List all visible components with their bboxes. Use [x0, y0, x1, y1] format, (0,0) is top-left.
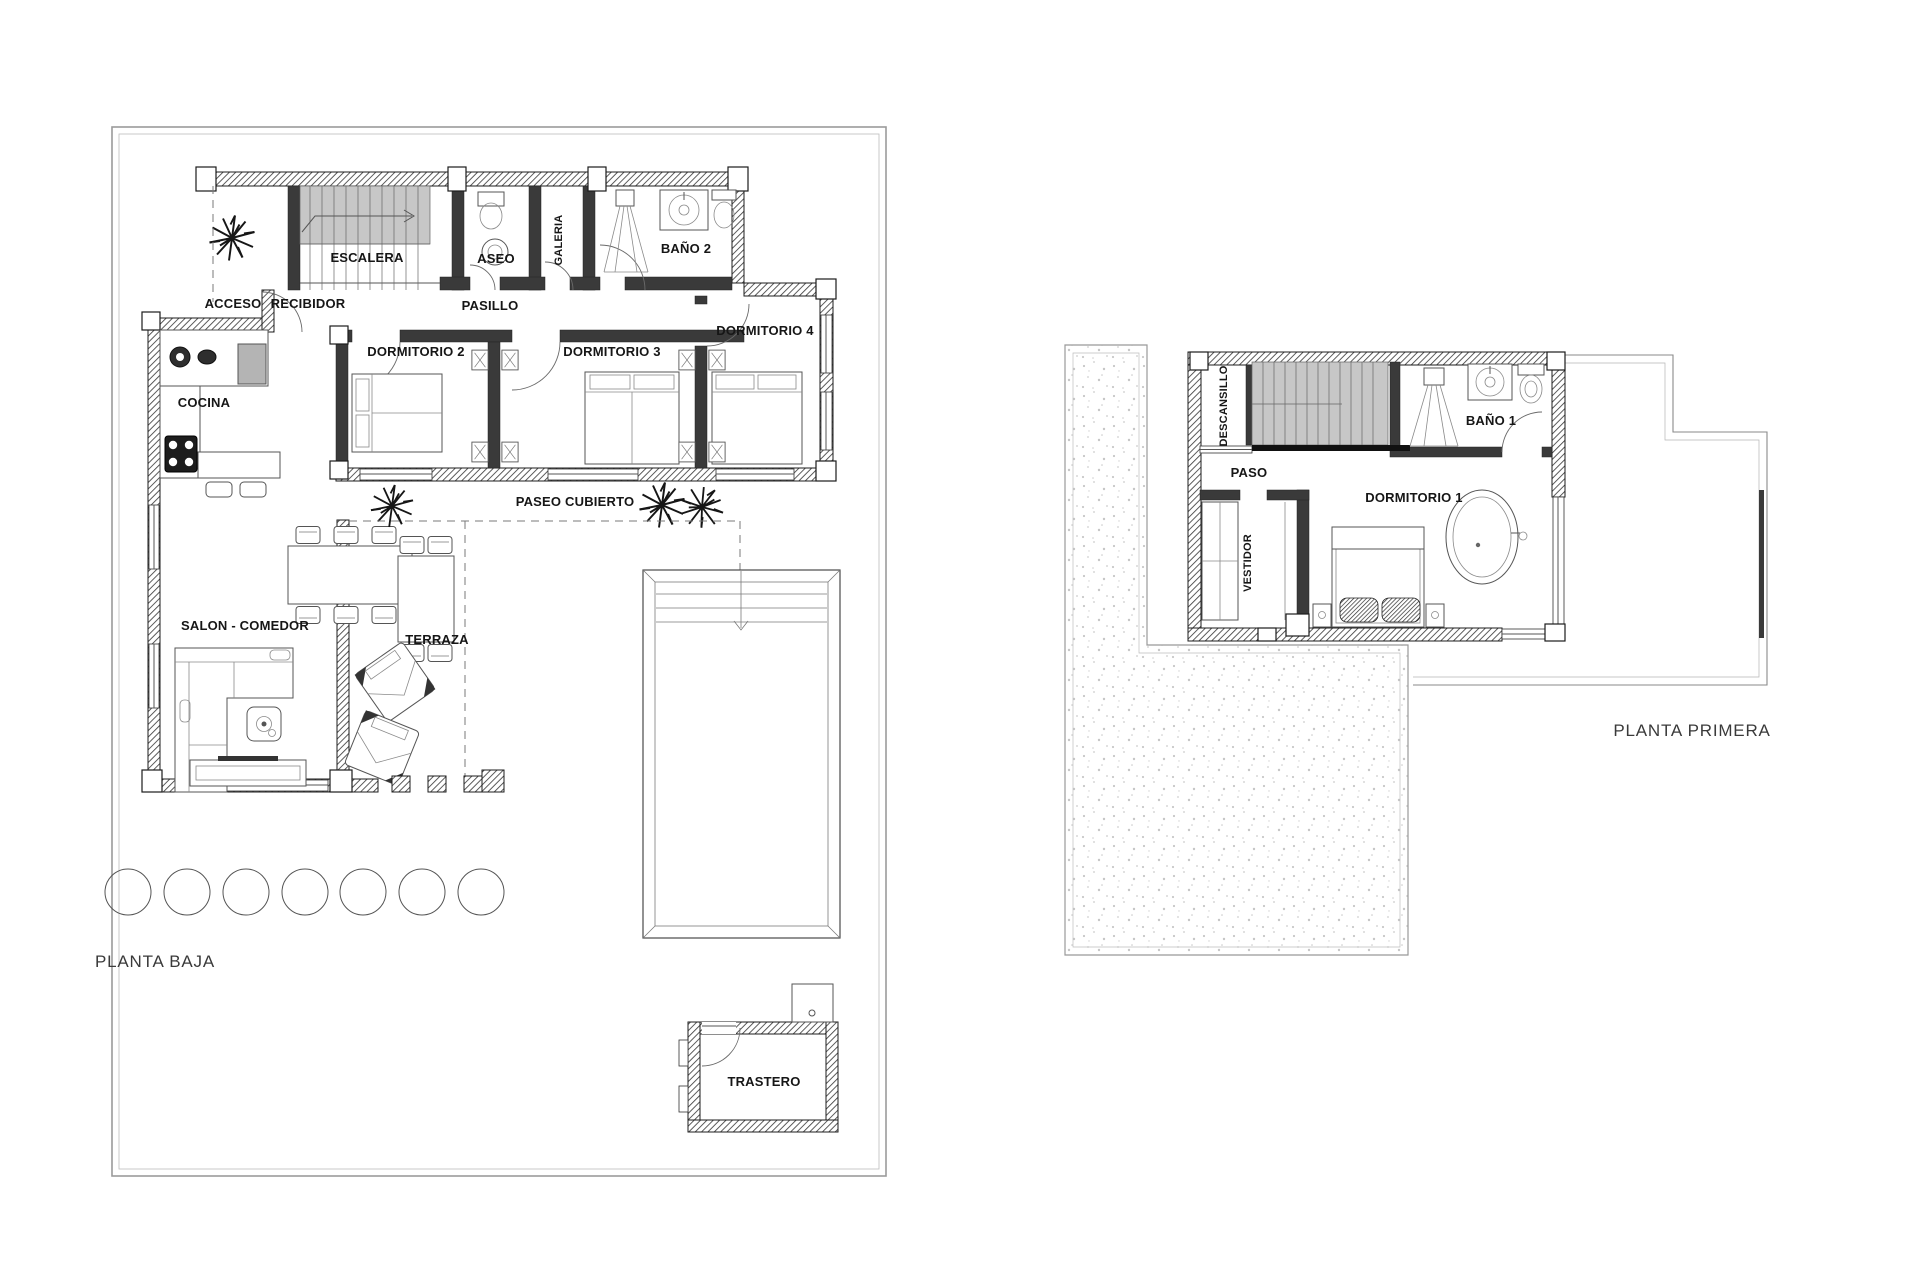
room-label-paso: PASO: [1231, 465, 1268, 480]
side-table-lamp: [247, 707, 281, 741]
lounge-chairs: [344, 642, 435, 786]
plan-title-planta-baja: PLANTA BAJA: [95, 952, 215, 971]
dining-set: [288, 527, 412, 624]
room-label-dormitorio1: DORMITORIO 1: [1365, 490, 1463, 505]
staircase-first: [1252, 362, 1410, 451]
room-label-terraza: TERRAZA: [405, 632, 469, 647]
planta-baja-plan: ESCALERA ASEO GALERIA BAÑO 2 ACCESO RECI…: [95, 127, 886, 1176]
room-label-descansillo: DESCANSILLO: [1218, 365, 1230, 446]
room-label-escalera: ESCALERA: [330, 250, 404, 265]
bedroom2-bed: [352, 374, 442, 452]
circles-row: [105, 869, 504, 915]
room-label-paseo-cubierto: PASEO CUBIERTO: [516, 494, 635, 509]
room-label-bano2: BAÑO 2: [661, 241, 711, 256]
room-label-acceso: ACCESO: [205, 296, 262, 311]
bedroom1-bed: [1313, 527, 1444, 627]
room-label-bano1: BAÑO 1: [1466, 413, 1516, 428]
room-label-trastero: TRASTERO: [727, 1074, 800, 1089]
floor-plan-canvas: ESCALERA ASEO GALERIA BAÑO 2 ACCESO RECI…: [0, 0, 1920, 1280]
room-label-salon-comedor: SALON - COMEDOR: [181, 618, 309, 633]
room-label-aseo: ASEO: [477, 251, 515, 266]
room-label-dormitorio2: DORMITORIO 2: [367, 344, 465, 359]
room-label-pasillo: PASILLO: [462, 298, 519, 313]
vestidor-wardrobe: [1202, 502, 1309, 636]
kitchen-fixtures: [160, 330, 280, 497]
trastero-shed: [679, 984, 838, 1132]
room-label-cocina: COCINA: [178, 395, 231, 410]
pergola-pillars: [392, 770, 504, 792]
room-label-vestidor: VESTIDOR: [1242, 534, 1254, 592]
bedroom3-bed: [585, 372, 679, 464]
room-label-recibidor: RECIBIDOR: [271, 296, 346, 311]
room-label-galeria: GALERIA: [553, 215, 565, 266]
bano1-fixtures: [1410, 364, 1544, 446]
planta-primera-plan: DESCANSILLO PASO BAÑO 1 DORMITORIO 1 VES…: [1065, 345, 1771, 955]
plan-title-planta-primera: PLANTA PRIMERA: [1613, 721, 1770, 740]
staircase-ground: [300, 186, 430, 290]
architectural-drawing-page: ESCALERA ASEO GALERIA BAÑO 2 ACCESO RECI…: [0, 0, 1920, 1280]
room-label-dormitorio4: DORMITORIO 4: [716, 323, 814, 338]
bano2-fixtures: [604, 190, 736, 272]
room-label-dormitorio3: DORMITORIO 3: [563, 344, 661, 359]
terrace-railing: [1759, 490, 1764, 638]
tv-unit: [190, 756, 306, 786]
pool: [643, 570, 840, 938]
